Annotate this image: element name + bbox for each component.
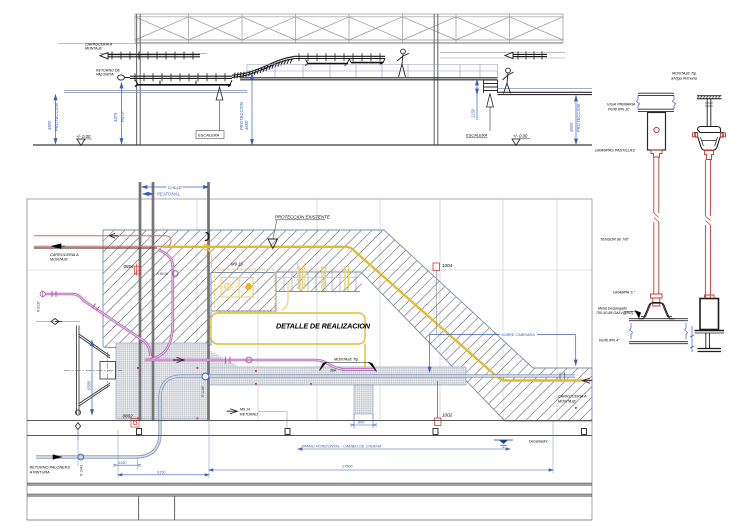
svg-text:GRAMPA "L": GRAMPA "L": [613, 291, 636, 295]
svg-text:1350: 1350: [118, 461, 127, 465]
svg-text:R 8137: R 8137: [37, 301, 41, 312]
svg-text:M9 14: M9 14: [240, 408, 250, 412]
svg-text:CARROCERIA A: CARROCERIA A: [50, 253, 79, 257]
svg-text:6150: 6150: [157, 470, 166, 474]
svg-text:5500: 5500: [87, 380, 92, 390]
svg-text:0804: 0804: [124, 264, 135, 269]
svg-text:860: 860: [358, 421, 365, 425]
svg-text:36A: 36A: [330, 369, 337, 373]
svg-text:CALLE: CALLE: [168, 185, 182, 190]
svg-text:Decantador: Decantador: [529, 440, 548, 444]
svg-text:Metal Desplegado: Metal Desplegado: [598, 307, 627, 311]
svg-text:RETORNO PALONERS: RETORNO PALONERS: [30, 466, 71, 470]
svg-text:A PINTURA: A PINTURA: [29, 471, 51, 475]
svg-text:VIGA PRIMARIA: VIGA PRIMARIA: [607, 103, 636, 107]
svg-text:Perfil IPN 4": Perfil IPN 4": [599, 339, 620, 343]
svg-text:TRAMO HORIZONTAL - CAMBIO DE: TRAMO HORIZONTAL - CAMBIO DE CADENA: [301, 444, 382, 448]
svg-text:4375: 4375: [113, 112, 118, 122]
svg-text:MONTAJE Tip.: MONTAJE Tip.: [334, 358, 359, 362]
svg-text:3500: 3500: [569, 122, 574, 132]
svg-text:Perfil IPN 10: Perfil IPN 10: [608, 108, 630, 112]
svg-text:PROTECCION: PROTECCION: [239, 101, 244, 130]
svg-text:MONTAJE: MONTAJE: [558, 399, 576, 403]
svg-text:CARROCERIA A: CARROCERIA A: [558, 395, 587, 399]
svg-text:3500: 3500: [47, 120, 52, 130]
svg-text:17500: 17500: [342, 465, 353, 469]
svg-text:MONTAJE: MONTAJE: [50, 258, 68, 262]
svg-text:P.M.F: P.M.F: [120, 111, 125, 122]
svg-text:R 1043: R 1043: [80, 465, 84, 476]
svg-text:1002: 1002: [442, 413, 453, 418]
svg-text:R 8V16: R 8V16: [157, 272, 168, 276]
svg-text:+/- 0.00: +/- 0.00: [513, 134, 528, 139]
svg-text:a/Viga Primaria: a/Viga Primaria: [671, 77, 697, 81]
svg-text:R 1144: R 1144: [201, 386, 205, 397]
svg-text:RETORNO: RETORNO: [240, 413, 258, 417]
svg-text:MONTAJE Tip.: MONTAJE Tip.: [672, 72, 697, 76]
svg-text:PROTECCION: PROTECCION: [576, 103, 581, 132]
svg-text:750-50-88 GALV(g/m2): 750-50-88 GALV(g/m2): [596, 311, 633, 315]
svg-text:PROTECCION EXISTENTE: PROTECCION EXISTENTE: [275, 215, 330, 220]
svg-text:ESCALERA: ESCALERA: [466, 133, 488, 138]
svg-text:0802: 0802: [123, 414, 134, 419]
svg-text:4650: 4650: [244, 120, 249, 130]
svg-text:SOBRE CABRIADA: SOBRE CABRIADA: [501, 333, 535, 337]
svg-text:M9 15: M9 15: [231, 261, 243, 266]
svg-text:PROTECCION: PROTECCION: [54, 102, 59, 131]
svg-text:1150: 1150: [471, 108, 476, 118]
svg-text:PALOMITA: PALOMITA: [96, 73, 114, 77]
svg-text:PEATONAL: PEATONAL: [157, 192, 181, 197]
svg-text:MONTAJE: MONTAJE: [85, 47, 103, 51]
svg-text:GRAMPAS PASTILLAS: GRAMPAS PASTILLAS: [595, 149, 635, 153]
svg-text:DETALLE DE REALIZACION: DETALLE DE REALIZACION: [276, 322, 371, 331]
svg-text:TENSOR de 7/8": TENSOR de 7/8": [600, 238, 629, 242]
svg-text:+/- 0.00: +/- 0.00: [76, 134, 91, 139]
svg-text:1004: 1004: [442, 263, 453, 268]
svg-text:ESCALERA: ESCALERA: [198, 133, 220, 138]
